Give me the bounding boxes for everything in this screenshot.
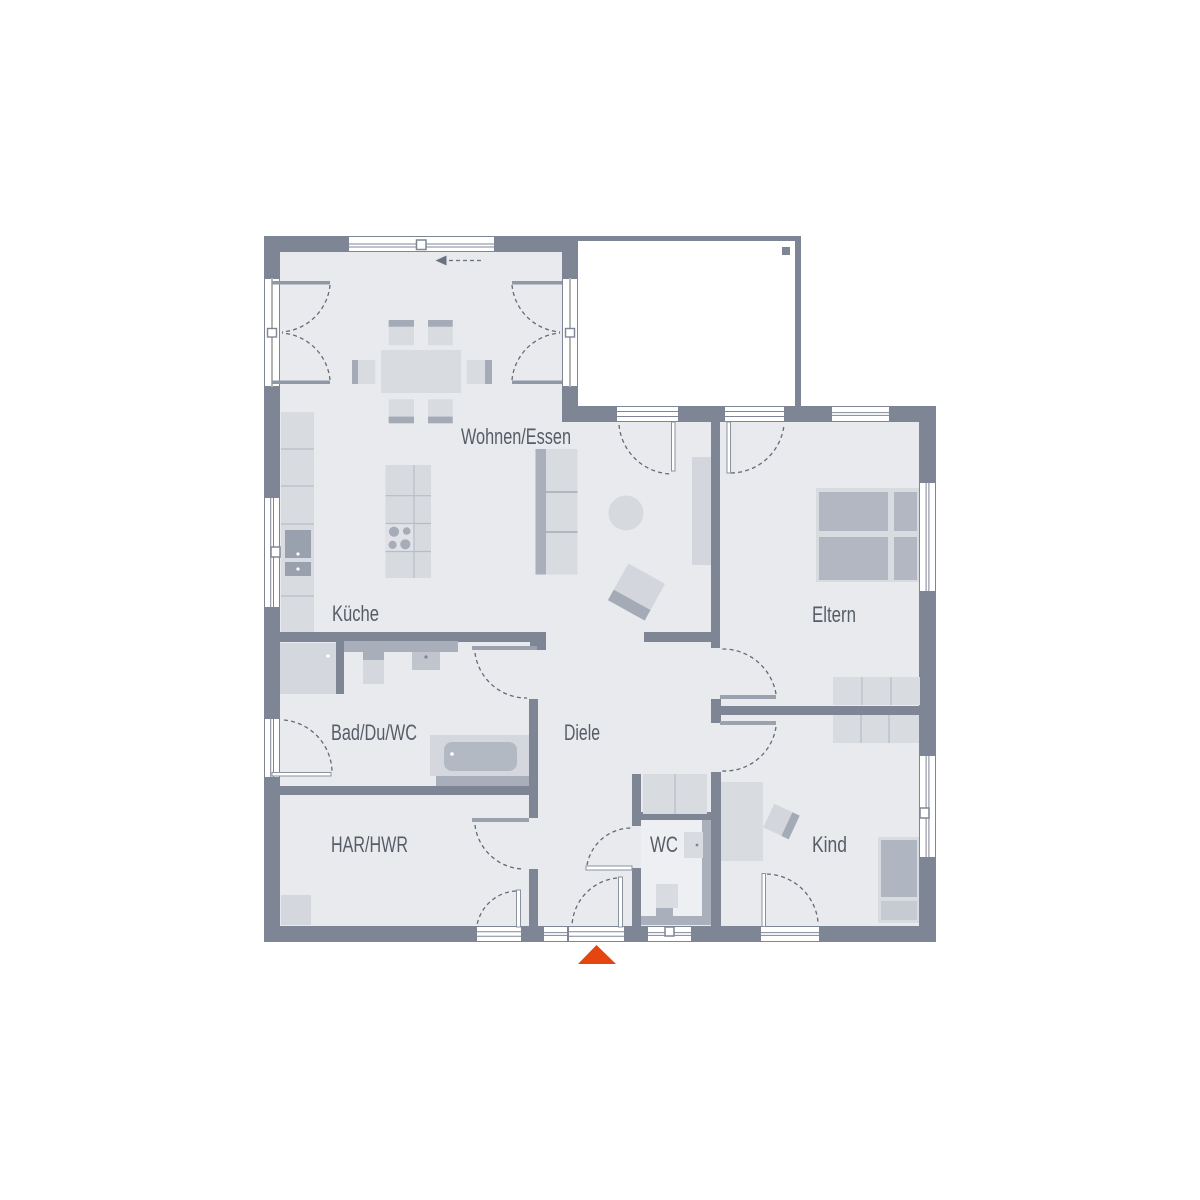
svg-text:WC: WC (650, 832, 678, 857)
svg-text:Küche: Küche (332, 601, 379, 626)
svg-text:Wohnen/Essen: Wohnen/Essen (461, 424, 571, 449)
svg-text:Diele: Diele (564, 720, 600, 745)
svg-text:Kind: Kind (812, 832, 847, 857)
svg-text:Bad/Du/WC: Bad/Du/WC (331, 720, 417, 745)
svg-text:HAR/HWR: HAR/HWR (331, 832, 408, 857)
svg-text:Eltern: Eltern (812, 602, 856, 627)
